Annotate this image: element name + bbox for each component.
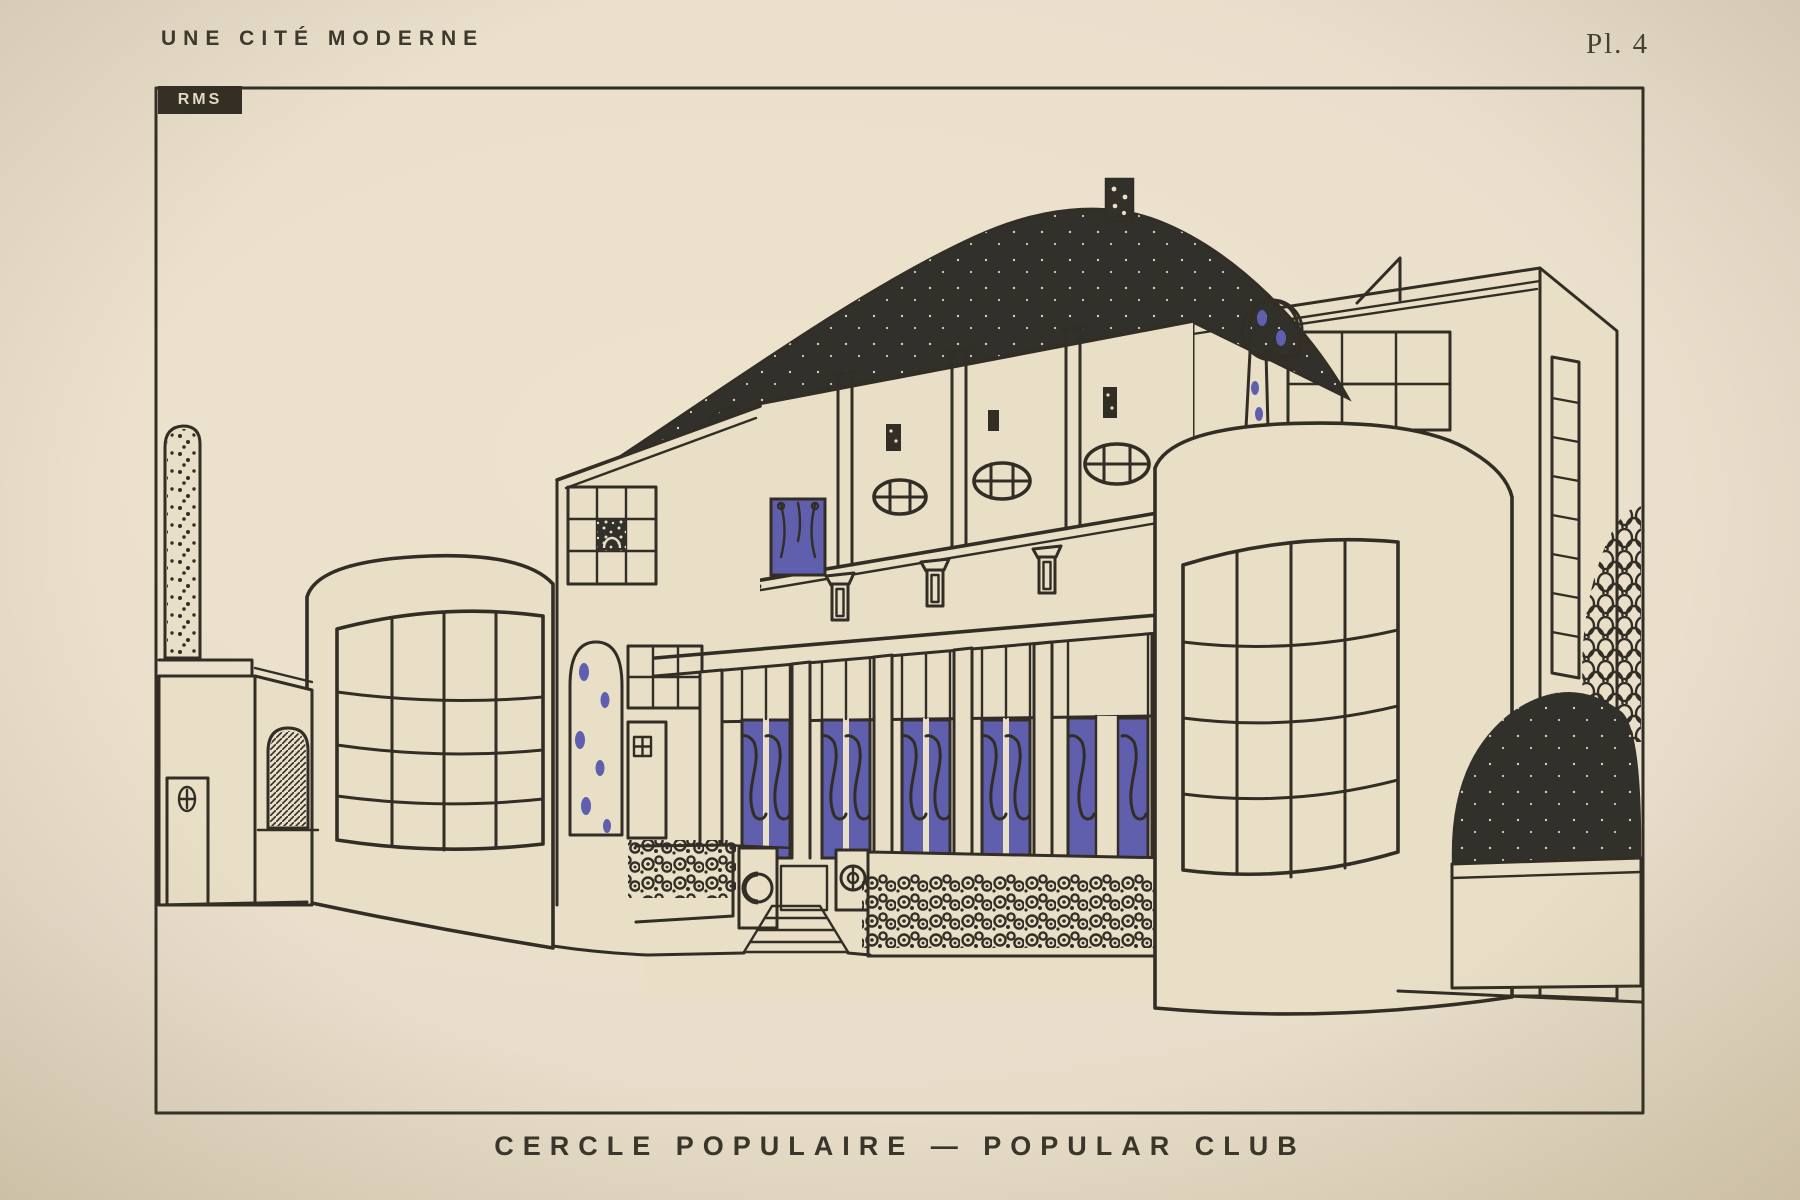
stele: [165, 426, 200, 658]
left-rounded-bay: [307, 556, 553, 948]
tall-blue-window: [771, 499, 825, 575]
small-building: [159, 676, 255, 905]
left-pedestal: [739, 848, 777, 928]
architect-monogram: RMS: [158, 86, 242, 114]
wing-service-door: [628, 722, 666, 838]
plate-page: UNE CITÉ MODERNE Pl. 4: [0, 0, 1800, 1200]
wall-coping: [159, 660, 252, 676]
right-planter: [862, 852, 1176, 956]
far-left-court: [159, 426, 318, 905]
plate-caption: CERCLE POPULAIRE — POPULAR CLUB: [0, 1131, 1800, 1162]
shrub-planter: [1452, 858, 1641, 988]
left-wing-grid-window: [568, 487, 656, 584]
left-planter: [628, 840, 736, 922]
dome-lantern-finial: [1106, 179, 1133, 221]
illustration-svg: [0, 0, 1800, 1200]
